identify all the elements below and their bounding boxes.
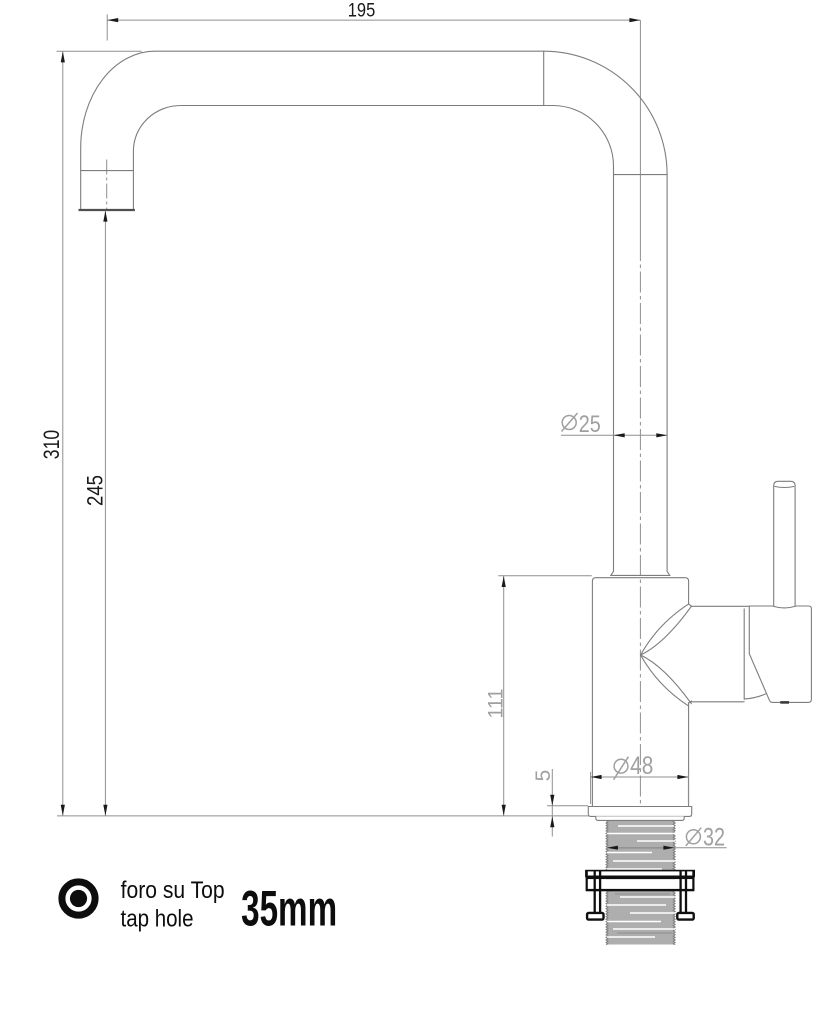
svg-text:35mm: 35mm (241, 881, 337, 937)
svg-text:foro su Top: foro su Top (121, 877, 225, 904)
svg-text:32: 32 (703, 824, 725, 852)
svg-text:tap hole: tap hole (121, 905, 194, 932)
svg-text:25: 25 (579, 411, 601, 438)
svg-text:5: 5 (532, 770, 555, 782)
svg-text:245: 245 (82, 475, 107, 506)
svg-text:48: 48 (630, 752, 653, 780)
svg-text:195: 195 (348, 0, 376, 21)
svg-text:310: 310 (39, 430, 64, 460)
svg-text:111: 111 (484, 689, 507, 719)
